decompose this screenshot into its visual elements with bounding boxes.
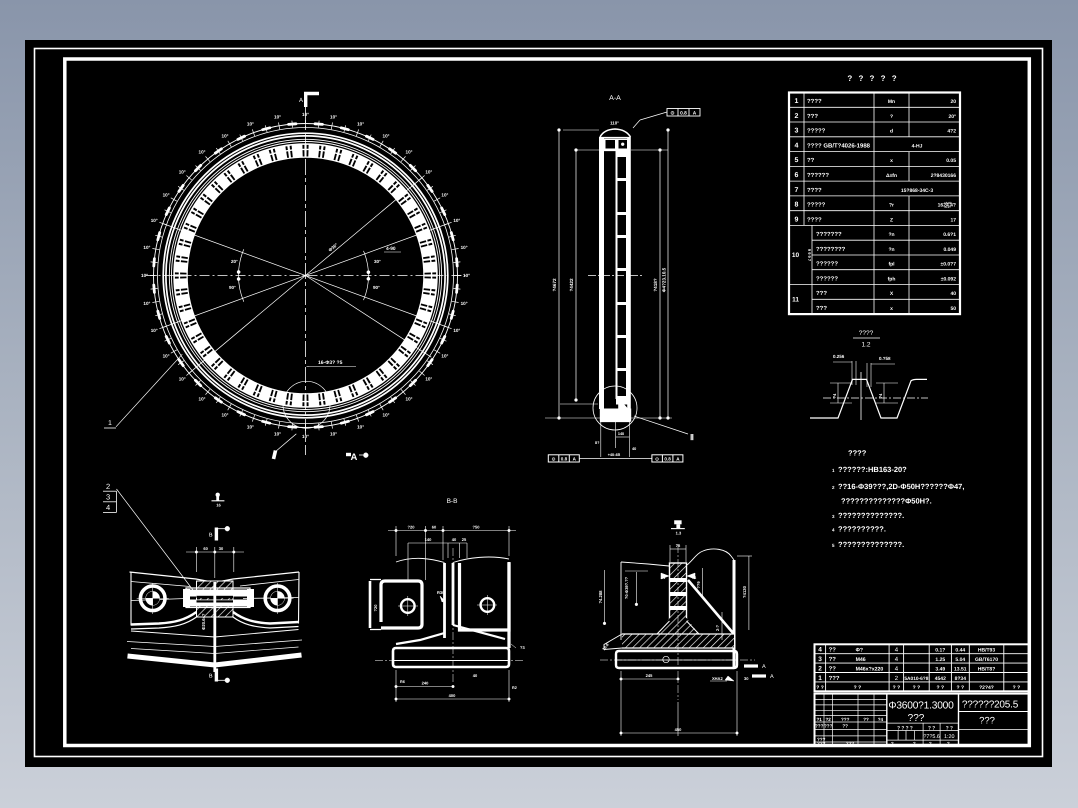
svg-text:M46: M46 bbox=[856, 657, 866, 663]
svg-text:⊙: ⊙ bbox=[670, 111, 674, 117]
svg-text:10°: 10° bbox=[143, 245, 150, 250]
svg-text:Ⅱ: Ⅱ bbox=[690, 433, 694, 442]
svg-text:fpl: fpl bbox=[888, 262, 895, 268]
svg-text:10°: 10° bbox=[302, 112, 309, 117]
svg-text:10°: 10° bbox=[247, 424, 254, 429]
svg-text:R30: R30 bbox=[437, 590, 445, 595]
svg-text:????: ???? bbox=[807, 216, 822, 223]
svg-text:d: d bbox=[890, 129, 893, 135]
svg-text:A: A bbox=[351, 452, 358, 463]
svg-text:?r: ?r bbox=[889, 203, 894, 209]
svg-text:??: ?? bbox=[863, 717, 869, 722]
svg-text:??9: ??9 bbox=[696, 581, 701, 589]
svg-text:1: 1 bbox=[818, 675, 822, 682]
svg-text:10°: 10° bbox=[274, 432, 281, 437]
svg-text:?: ? bbox=[913, 741, 916, 746]
svg-text:16: 16 bbox=[216, 503, 221, 508]
svg-text:???: ??? bbox=[815, 724, 824, 729]
svg-text:4-90: 4-90 bbox=[386, 246, 396, 252]
svg-text:10°: 10° bbox=[179, 170, 186, 175]
svg-text:??: ?? bbox=[829, 665, 837, 672]
svg-text:?3: ?3 bbox=[520, 645, 525, 650]
svg-text:4: 4 bbox=[106, 503, 110, 512]
svg-text:13.51: 13.51 bbox=[954, 666, 967, 672]
svg-text:???? GB/T?4026-1988: ???? GB/T?4026-1988 bbox=[807, 142, 871, 149]
svg-text:10°: 10° bbox=[143, 301, 150, 306]
svg-text:?????: ????? bbox=[807, 128, 826, 135]
svg-text:10°: 10° bbox=[425, 377, 432, 382]
svg-text:??16-Φ39???,2D-Φ50H??????Φ47,: ??16-Φ39???,2D-Φ50H??????Φ47, bbox=[838, 482, 964, 491]
svg-text:10°: 10° bbox=[163, 193, 170, 198]
svg-text:?2: ?2 bbox=[826, 717, 832, 722]
svg-text:??????:HB163-20?: ??????:HB163-20? bbox=[838, 465, 907, 474]
svg-text:50: 50 bbox=[950, 306, 956, 312]
svg-text:x: x bbox=[890, 158, 893, 164]
svg-text:x: x bbox=[890, 306, 893, 312]
svg-text:Δ±fn: Δ±fn bbox=[886, 173, 897, 179]
svg-text:Φ4?23.10.5: Φ4?23.10.5 bbox=[662, 267, 667, 292]
svg-text:±0.092: ±0.092 bbox=[941, 276, 956, 282]
svg-text:140: 140 bbox=[425, 537, 432, 542]
svg-text:??????: ?????? bbox=[816, 261, 838, 268]
svg-text:???: ??? bbox=[817, 741, 826, 746]
svg-text:10°: 10° bbox=[441, 193, 448, 198]
svg-text:Φ3600?1.3000: Φ3600?1.3000 bbox=[888, 701, 954, 712]
svg-text:1:20: 1:20 bbox=[944, 734, 955, 740]
svg-text:20°: 20° bbox=[948, 114, 956, 120]
svg-text:A: A bbox=[770, 674, 774, 680]
svg-text:10°: 10° bbox=[383, 412, 390, 417]
svg-text:10°: 10° bbox=[274, 114, 281, 119]
svg-text:4: 4 bbox=[795, 142, 799, 149]
svg-text:16-Φ3? ?5: 16-Φ3? ?5 bbox=[318, 360, 343, 366]
svg-text:10°: 10° bbox=[302, 434, 309, 439]
svg-text:A: A bbox=[299, 97, 303, 104]
svg-text:30°: 30° bbox=[374, 259, 381, 264]
svg-text:10°: 10° bbox=[330, 114, 337, 119]
svg-text:???: ??? bbox=[816, 290, 827, 297]
svg-text:40: 40 bbox=[473, 673, 478, 678]
svg-text:1.2: 1.2 bbox=[861, 342, 870, 349]
svg-text:1.3: 1.3 bbox=[676, 531, 682, 536]
svg-text:3: 3 bbox=[818, 656, 822, 663]
svg-text:A-A: A-A bbox=[609, 95, 621, 102]
svg-text:20°: 20° bbox=[231, 259, 238, 264]
svg-text:????????: ???????? bbox=[816, 246, 846, 253]
svg-text:?: ? bbox=[929, 741, 932, 746]
svg-text:2: 2 bbox=[106, 482, 110, 491]
svg-text:10°: 10° bbox=[141, 273, 148, 278]
svg-text:?4422: ?4422 bbox=[569, 278, 574, 291]
svg-text:???: ??? bbox=[824, 724, 833, 729]
svg-text:?????: ????? bbox=[807, 202, 826, 209]
svg-text:??: ?? bbox=[829, 647, 837, 654]
svg-text:4: 4 bbox=[818, 647, 822, 654]
svg-text:1: 1 bbox=[108, 420, 112, 427]
svg-text:±0.0?7: ±0.0?7 bbox=[940, 262, 956, 268]
svg-text:B: B bbox=[209, 674, 213, 680]
svg-text:?20: ?20 bbox=[373, 604, 378, 612]
svg-text:B: B bbox=[209, 533, 213, 539]
svg-text:10°: 10° bbox=[163, 354, 170, 359]
svg-text:1: 1 bbox=[795, 98, 799, 105]
svg-text:25: 25 bbox=[462, 537, 467, 542]
svg-text:???: ??? bbox=[807, 113, 818, 120]
svg-text:GB/T6170: GB/T6170 bbox=[975, 657, 998, 663]
svg-text:?n: ?n bbox=[888, 247, 894, 253]
svg-text:0.1?: 0.1? bbox=[935, 648, 945, 654]
svg-text:10: 10 bbox=[792, 252, 800, 259]
svg-text:11: 11 bbox=[792, 296, 799, 303]
svg-text:A: A bbox=[762, 664, 766, 670]
svg-text:10°: 10° bbox=[463, 273, 470, 278]
svg-text:HB/T93: HB/T93 bbox=[978, 648, 995, 654]
svg-text:2-?: 2-? bbox=[715, 624, 720, 631]
svg-text:??: ?? bbox=[842, 724, 848, 729]
svg-text:⊙: ⊙ bbox=[552, 457, 556, 462]
svg-text:10°: 10° bbox=[461, 301, 468, 306]
svg-text:10°: 10° bbox=[383, 134, 390, 139]
svg-text:Φ?: Φ? bbox=[856, 648, 863, 654]
svg-text:10°: 10° bbox=[330, 432, 337, 437]
svg-text:???: ??? bbox=[829, 675, 840, 682]
svg-text:10°: 10° bbox=[151, 328, 158, 333]
svg-text:??????: ?????? bbox=[807, 172, 829, 179]
svg-text:0.8: 0.8 bbox=[664, 457, 671, 462]
svg-text:40: 40 bbox=[452, 537, 457, 542]
svg-text:400: 400 bbox=[449, 693, 456, 698]
svg-text:140: 140 bbox=[618, 432, 624, 436]
svg-text:245: 245 bbox=[646, 673, 653, 678]
svg-text:9 9 9 7: 9 9 9 7 bbox=[807, 249, 812, 262]
svg-text:?4.288: ?4.288 bbox=[598, 590, 603, 604]
svg-text:10°: 10° bbox=[441, 354, 448, 359]
svg-text:???: ??? bbox=[846, 741, 855, 746]
svg-text:60: 60 bbox=[203, 546, 208, 551]
svg-text:10°: 10° bbox=[406, 150, 413, 155]
svg-text:3: 3 bbox=[795, 128, 799, 135]
svg-text:90°: 90° bbox=[373, 285, 380, 290]
svg-text:20: 20 bbox=[950, 99, 956, 105]
svg-text:0.?58: 0.?58 bbox=[879, 356, 891, 361]
svg-text:90°: 90° bbox=[229, 285, 236, 290]
svg-text:10°: 10° bbox=[222, 134, 229, 139]
svg-text:?n: ?n bbox=[888, 232, 894, 238]
svg-text:???: ??? bbox=[816, 305, 827, 312]
svg-text:??????????????.: ??????????????. bbox=[838, 511, 904, 520]
svg-text:30: 30 bbox=[219, 546, 224, 551]
svg-text:60: 60 bbox=[432, 525, 437, 530]
svg-text:3.49: 3.49 bbox=[935, 666, 945, 672]
svg-text:3: 3 bbox=[106, 493, 110, 502]
svg-text:8?: 8? bbox=[595, 441, 600, 445]
svg-text:8?34: 8?34 bbox=[955, 676, 967, 682]
svg-text:0.8: 0.8 bbox=[561, 457, 568, 462]
svg-text:?7?5.6: ?7?5.6 bbox=[923, 734, 940, 740]
svg-text:10°: 10° bbox=[247, 122, 254, 127]
svg-text:10°: 10° bbox=[199, 396, 206, 401]
svg-text:8: 8 bbox=[795, 202, 799, 209]
svg-text:fph: fph bbox=[888, 276, 896, 282]
svg-text:2: 2 bbox=[795, 113, 799, 120]
svg-text:??????205.5: ??????205.5 bbox=[962, 700, 1019, 711]
svg-text:Φ20.64?: Φ20.64? bbox=[201, 613, 206, 630]
svg-text:4542: 4542 bbox=[935, 676, 946, 682]
svg-text:????: ???? bbox=[859, 330, 874, 337]
svg-text:??????: ?????? bbox=[816, 275, 838, 282]
svg-text:⊙: ⊙ bbox=[655, 457, 659, 462]
svg-text:5.04: 5.04 bbox=[955, 657, 965, 663]
svg-text:1.25: 1.25 bbox=[935, 657, 945, 663]
svg-text:10°: 10° bbox=[453, 218, 460, 223]
svg-text:5A010-6?8: 5A010-6?8 bbox=[904, 676, 928, 682]
svg-text:?20: ?20 bbox=[408, 525, 416, 530]
svg-text:??????????????Φ50H?.: ??????????????Φ50H?. bbox=[841, 497, 932, 506]
svg-text:??: ?? bbox=[807, 157, 815, 164]
svg-text:4?2: 4?2 bbox=[947, 129, 956, 135]
svg-text:?: ? bbox=[891, 741, 894, 746]
svg-text:R6: R6 bbox=[400, 680, 405, 684]
svg-text:240: 240 bbox=[422, 681, 429, 686]
svg-text:????: ???? bbox=[807, 98, 822, 105]
svg-text:1624.4?: 1624.4? bbox=[938, 203, 956, 209]
svg-text:HB/T8?: HB/T8? bbox=[978, 666, 996, 672]
svg-text:2?8430166: 2?8430166 bbox=[931, 173, 957, 179]
svg-text:17: 17 bbox=[950, 217, 956, 223]
svg-text:?4: ?4 bbox=[878, 717, 884, 722]
svg-text:?418?: ?418? bbox=[653, 278, 658, 291]
svg-text:Mn: Mn bbox=[888, 99, 895, 105]
svg-text:? ? ? ? ?: ? ? ? ? ? bbox=[847, 74, 898, 83]
svg-text:0.6?1: 0.6?1 bbox=[943, 232, 956, 238]
svg-text:?50: ?50 bbox=[473, 525, 481, 530]
svg-text:10°: 10° bbox=[406, 396, 413, 401]
svg-text:10°: 10° bbox=[357, 122, 364, 127]
svg-text:75: 75 bbox=[676, 543, 681, 548]
svg-text:10°: 10° bbox=[453, 328, 460, 333]
svg-text:???: ??? bbox=[979, 716, 995, 727]
svg-text:?4: ?4 bbox=[878, 393, 883, 398]
svg-text:?0-Φ39?.??: ?0-Φ39?.?? bbox=[624, 576, 629, 599]
svg-text:10°: 10° bbox=[222, 412, 229, 417]
svg-text:40: 40 bbox=[950, 291, 956, 297]
svg-text:???: ??? bbox=[841, 717, 850, 722]
svg-text:R2: R2 bbox=[512, 686, 517, 690]
svg-text:?4: ?4 bbox=[832, 393, 837, 398]
svg-text:10°: 10° bbox=[357, 424, 364, 429]
svg-text:9: 9 bbox=[795, 216, 799, 223]
svg-text:???: ??? bbox=[908, 713, 925, 724]
svg-text:6: 6 bbox=[795, 172, 799, 179]
svg-text:?5: ?5 bbox=[692, 576, 696, 580]
svg-text:????: ???? bbox=[848, 449, 867, 458]
svg-text:2: 2 bbox=[818, 665, 822, 672]
svg-text:?: ? bbox=[947, 741, 950, 746]
svg-text:7: 7 bbox=[795, 187, 799, 194]
svg-text:0.049: 0.049 bbox=[943, 247, 956, 253]
svg-text:Z: Z bbox=[890, 217, 893, 223]
svg-text:??: ?? bbox=[829, 656, 837, 663]
svg-text:10°: 10° bbox=[179, 377, 186, 382]
svg-text:XHA2: XHA2 bbox=[712, 676, 723, 681]
svg-text:30: 30 bbox=[744, 676, 749, 681]
svg-text:0.256: 0.256 bbox=[833, 354, 845, 359]
svg-text:?1: ?1 bbox=[817, 717, 823, 722]
svg-text:5: 5 bbox=[795, 157, 799, 164]
svg-text:???????: ??????? bbox=[816, 231, 842, 238]
svg-text:B-B: B-B bbox=[447, 498, 458, 505]
svg-text:10°: 10° bbox=[425, 170, 432, 175]
svg-text:?4672: ?4672 bbox=[552, 278, 557, 291]
svg-text:15?868-34C-3: 15?868-34C-3 bbox=[901, 188, 933, 194]
svg-text:?4130: ?4130 bbox=[742, 585, 747, 598]
svg-text:+40-4B: +40-4B bbox=[608, 453, 621, 457]
svg-text:M46x?x220: M46x?x220 bbox=[856, 666, 884, 672]
svg-text:10°: 10° bbox=[461, 245, 468, 250]
svg-text:0.44: 0.44 bbox=[955, 648, 965, 654]
svg-text:110°: 110° bbox=[610, 121, 619, 126]
svg-text:?: ? bbox=[890, 114, 893, 120]
svg-text:A: A bbox=[693, 111, 697, 117]
svg-text:??????????????.: ??????????????. bbox=[838, 540, 904, 549]
svg-text:0.05: 0.05 bbox=[946, 158, 956, 164]
svg-text:??????????.: ??????????. bbox=[838, 525, 886, 534]
svg-text:10°: 10° bbox=[151, 218, 158, 223]
svg-text:????: ???? bbox=[807, 187, 822, 194]
svg-text:10°: 10° bbox=[199, 150, 206, 155]
svg-text:4-HJ: 4-HJ bbox=[912, 143, 923, 149]
svg-text:450: 450 bbox=[675, 727, 682, 732]
svg-text:40: 40 bbox=[632, 447, 636, 451]
svg-text:0.8: 0.8 bbox=[680, 111, 687, 117]
